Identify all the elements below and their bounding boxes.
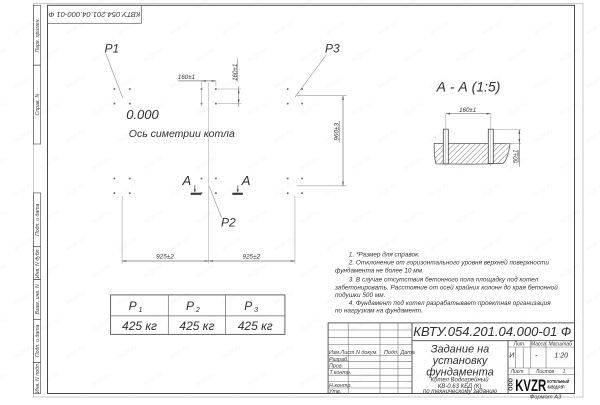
svg-text:160±1: 160±1: [459, 107, 476, 114]
svg-text:N докум.: N докум.: [356, 350, 378, 356]
svg-text:425 кг: 425 кг: [179, 319, 214, 333]
svg-text:1. *Размер для справок.: 1. *Размер для справок.: [349, 250, 420, 258]
svg-text:925±2: 925±2: [242, 253, 260, 260]
svg-text:Подп. и дата: Подп. и дата: [35, 203, 41, 236]
svg-text:по нагрузкам на фундамент.: по нагрузкам на фундамент.: [335, 307, 423, 315]
svg-text:Масса: Масса: [531, 341, 546, 347]
svg-text:Лит.: Лит.: [513, 341, 526, 347]
svg-text:А: А: [241, 173, 251, 188]
svg-text:925±2: 925±2: [156, 253, 174, 260]
svg-text:Подп. и дата: Подп. и дата: [35, 325, 41, 358]
svg-text:забетонировать. Расстояние от: забетонировать. Расстояние от осей крайн…: [334, 283, 558, 291]
svg-text:фундамента не более 10 мм.: фундамента не более 10 мм.: [335, 267, 424, 275]
svg-text:Дата: Дата: [400, 350, 415, 356]
svg-text:установку: установку: [432, 355, 489, 367]
svg-text:Перв. примен.: Перв. примен.: [35, 18, 41, 52]
svg-text:КВТУ.054.201.04.000-01 Ф: КВТУ.054.201.04.000-01 Ф: [413, 324, 571, 339]
svg-text:А - А (1:5): А - А (1:5): [436, 79, 501, 95]
svg-text:160±1: 160±1: [178, 74, 195, 81]
svg-text:KVZR: KVZR: [515, 377, 546, 395]
svg-text:425 кг: 425 кг: [122, 319, 157, 333]
svg-text:Подп.: Подп.: [384, 350, 398, 356]
svg-text:ООО: ООО: [509, 377, 515, 391]
svg-text:Листов: Листов: [535, 369, 555, 375]
svg-text:подушки 500 мм.: подушки 500 мм.: [335, 291, 385, 299]
svg-text:Изм.Лист: Изм.Лист: [329, 350, 355, 356]
svg-text:Лист: Лист: [510, 369, 524, 375]
svg-text:425 кг: 425 кг: [238, 319, 273, 333]
svg-text:1:20: 1:20: [554, 353, 568, 360]
svg-text:Утв.: Утв.: [328, 389, 341, 395]
svg-text:Инв. N подл.: Инв. N подл.: [35, 363, 41, 393]
svg-text:Взам. инв. N: Взам. инв. N: [35, 284, 41, 314]
svg-text:Р1: Р1: [105, 41, 120, 55]
svg-text:Т.контр.: Т.контр.: [330, 370, 352, 376]
svg-text:КОТЕЛЬНЫЙ: КОТЕЛЬНЫЙ: [547, 377, 569, 384]
svg-text:Формат А3: Формат А3: [530, 394, 562, 400]
svg-text:Р3: Р3: [325, 41, 340, 55]
svg-text:2. Отклонение от горизонтально: 2. Отклонение от горизонтального уровня …: [348, 259, 550, 267]
svg-text:Инв. N дубл.: Инв. N дубл.: [35, 248, 41, 278]
svg-text:160±1: 160±1: [232, 64, 239, 81]
svg-text:Масштаб: Масштаб: [549, 341, 573, 347]
svg-text:4. Фундамент под котел разраба: 4. Фундамент под котел разрабатывает про…: [349, 299, 551, 307]
svg-text:0.000: 0.000: [126, 107, 159, 122]
svg-text:Ось симетрии котла: Ось симетрии котла: [129, 128, 235, 140]
svg-text:по техническому заданию: по техническому заданию: [423, 389, 498, 395]
svg-text:ЗАВОД РЭП: ЗАВОД РЭП: [547, 384, 564, 389]
svg-text:1: 1: [563, 369, 566, 375]
svg-text:Р2: Р2: [221, 215, 236, 229]
svg-text:3. В случае отсутствия бетонно: 3. В случае отсутствия бетонного пола пл…: [349, 275, 539, 283]
svg-text:Пров.: Пров.: [329, 363, 343, 369]
svg-text:Разраб.: Разраб.: [329, 357, 349, 363]
svg-text:КВТУ.054.201.04.000-01 Ф: КВТУ.054.201.04.000-01 Ф: [48, 10, 140, 19]
svg-text:А: А: [182, 173, 192, 188]
svg-text:Задание на: Задание на: [431, 343, 490, 355]
svg-text:Котел Водогрейный: Котел Водогрейный: [430, 377, 489, 384]
svg-text:Справ. N: Справ. N: [35, 93, 41, 115]
